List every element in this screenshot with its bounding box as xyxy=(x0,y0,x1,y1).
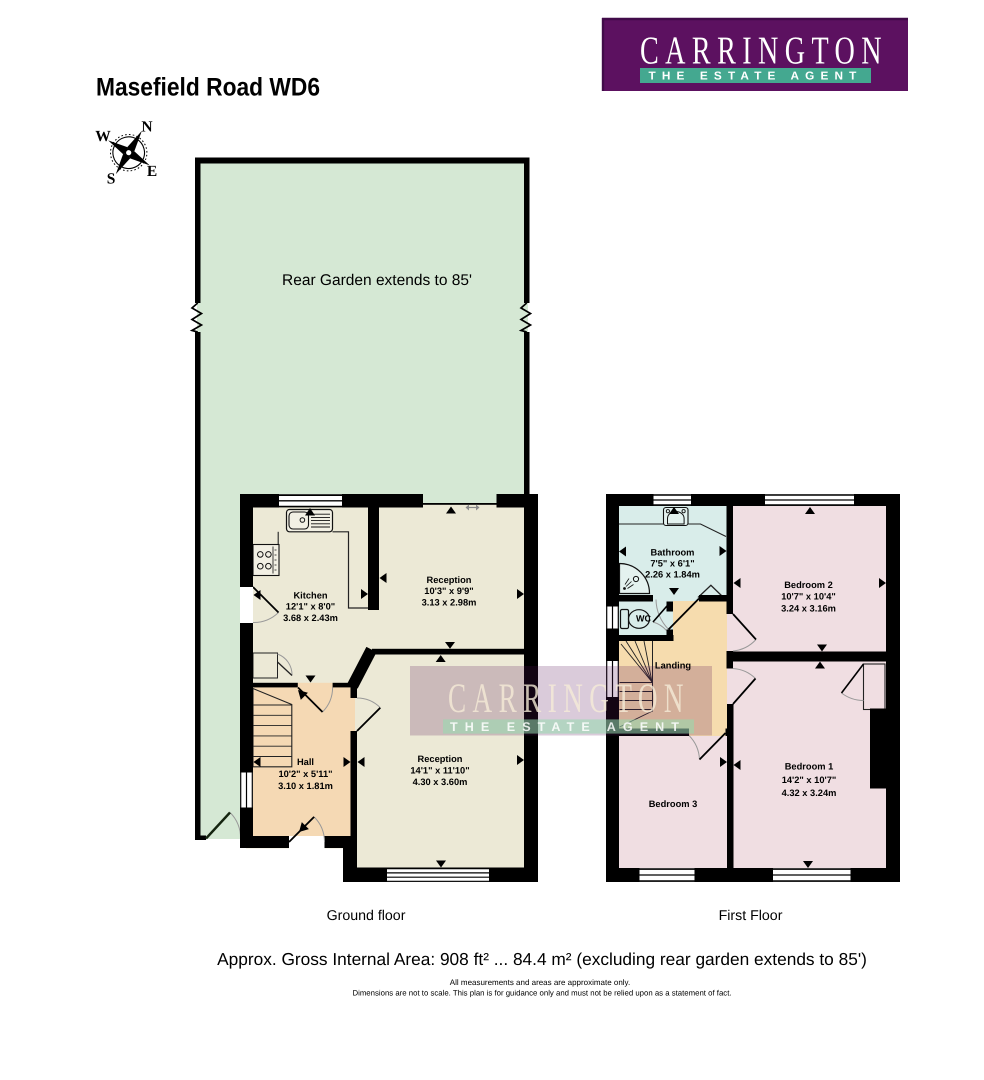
svg-text:3.68 x 2.43m: 3.68 x 2.43m xyxy=(283,613,338,623)
svg-text:2.26 x 1.84m: 2.26 x 1.84m xyxy=(645,570,700,580)
svg-text:12'1" x 8'0": 12'1" x 8'0" xyxy=(286,602,335,612)
svg-text:Rear Garden extends to 85': Rear Garden extends to 85' xyxy=(282,272,472,289)
svg-text:Bathroom: Bathroom xyxy=(651,548,695,558)
svg-text:Landing: Landing xyxy=(655,661,691,671)
svg-text:Masefield Road WD6: Masefield Road WD6 xyxy=(96,74,320,102)
svg-text:Reception: Reception xyxy=(418,754,463,764)
svg-text:Bedroom 3: Bedroom 3 xyxy=(649,799,698,809)
svg-text:Dimensions are not to scale. T: Dimensions are not to scale. This plan i… xyxy=(352,988,731,997)
svg-text:Approx. Gross Internal Area: 9: Approx. Gross Internal Area: 908 ft² ...… xyxy=(217,949,867,969)
svg-text:Bedroom 2: Bedroom 2 xyxy=(784,580,833,590)
svg-text:First Floor: First Floor xyxy=(719,908,783,924)
svg-text:Bedroom 1: Bedroom 1 xyxy=(785,762,834,772)
svg-text:CARRINGTON: CARRINGTON xyxy=(448,676,690,722)
svg-text:10'3" x 9'9": 10'3" x 9'9" xyxy=(424,586,473,596)
svg-text:14'2" x 10'7": 14'2" x 10'7" xyxy=(782,775,837,785)
svg-text:10'2" x 5'11": 10'2" x 5'11" xyxy=(278,769,332,779)
svg-text:7'5" x 6'1": 7'5" x 6'1" xyxy=(650,559,694,569)
svg-text:4.32 x 3.24m: 4.32 x 3.24m xyxy=(782,788,837,798)
svg-text:14'1" x 11'10": 14'1" x 11'10" xyxy=(410,765,469,775)
svg-text:Hall: Hall xyxy=(297,757,314,767)
svg-text:CARRINGTON: CARRINGTON xyxy=(640,29,888,73)
svg-text:THE ESTATE AGENT: THE ESTATE AGENT xyxy=(649,71,863,83)
svg-text:3.24 x 3.16m: 3.24 x 3.16m xyxy=(781,604,836,614)
svg-text:Kitchen: Kitchen xyxy=(293,591,327,601)
svg-text:10'7" x 10'4": 10'7" x 10'4" xyxy=(781,592,836,602)
svg-text:S: S xyxy=(107,171,116,188)
svg-text:3.13 x 2.98m: 3.13 x 2.98m xyxy=(422,597,477,607)
svg-text:3.10 x 1.81m: 3.10 x 1.81m xyxy=(278,781,333,791)
svg-text:W: W xyxy=(95,128,111,145)
svg-text:Ground floor: Ground floor xyxy=(327,908,406,924)
svg-text:All measurements and areas are: All measurements and areas are approxima… xyxy=(450,978,630,987)
svg-text:Reception: Reception xyxy=(427,575,472,585)
svg-text:WC: WC xyxy=(636,613,651,623)
svg-text:N: N xyxy=(141,119,152,136)
svg-text:4.30 x 3.60m: 4.30 x 3.60m xyxy=(413,777,468,787)
svg-text:THE ESTATE AGENT: THE ESTATE AGENT xyxy=(450,720,686,734)
svg-text:E: E xyxy=(147,163,157,180)
